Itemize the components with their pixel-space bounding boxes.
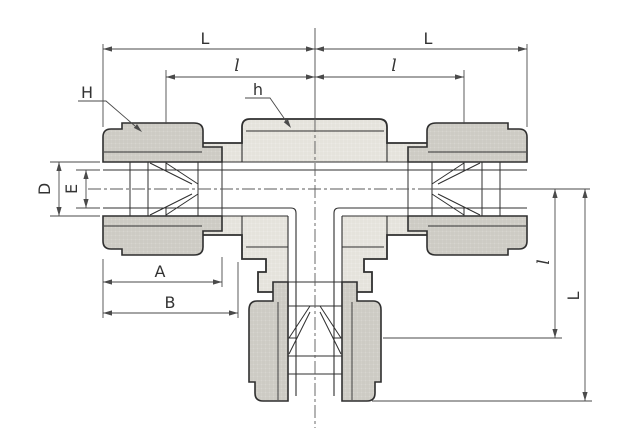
label-length-L-right: L [424,29,433,48]
label-nut-length-A: A [155,262,166,281]
label-length-L-left: L [201,29,210,48]
tee-fitting-drawing: L L l l H h D E A B l L [0,0,625,438]
label-tube-od-D: D [35,183,54,195]
label-body-hex-h: h [253,80,263,99]
label-length-l-right: l [391,56,396,76]
technical-drawing-page: L L l l H h D E A B l L [0,0,625,438]
label-length-l-left: l [234,56,239,76]
label-branch-L: L [564,291,583,300]
label-body-length-B: B [165,293,176,312]
label-branch-l: l [534,259,554,264]
label-nut-hex-H: H [81,83,93,102]
label-bore-E: E [62,184,81,194]
